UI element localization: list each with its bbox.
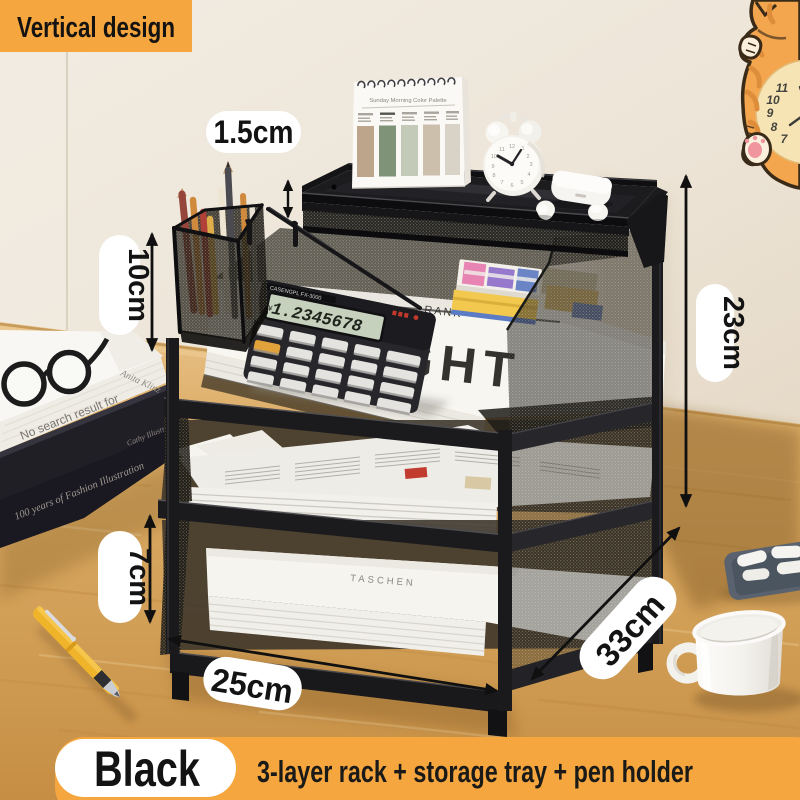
svg-text:10: 10 (766, 93, 780, 107)
svg-text:9: 9 (491, 164, 494, 170)
svg-text:1: 1 (521, 146, 524, 152)
svg-text:7cm: 7cm (123, 548, 155, 606)
svg-text:8: 8 (492, 173, 495, 179)
svg-text:11: 11 (499, 147, 505, 153)
svg-text:3: 3 (529, 162, 532, 168)
svg-text:9: 9 (767, 106, 774, 120)
svg-text:12: 12 (509, 144, 515, 150)
svg-text:6: 6 (510, 183, 513, 189)
svg-text:10cm: 10cm (122, 248, 154, 322)
svg-text:7: 7 (500, 180, 503, 186)
svg-text:Sunday Morning Color Palette: Sunday Morning Color Palette (369, 98, 446, 104)
svg-text:8: 8 (771, 120, 778, 134)
svg-text:10: 10 (491, 154, 497, 160)
svg-text:Black: Black (94, 741, 200, 797)
svg-text:5: 5 (520, 180, 523, 186)
svg-text:3-layer rack + storage tray +: 3-layer rack + storage tray + pen holder (257, 754, 693, 789)
svg-text:Vertical design: Vertical design (17, 12, 175, 44)
svg-text:4: 4 (527, 172, 530, 178)
svg-text:2: 2 (526, 154, 529, 160)
svg-text:1.5cm: 1.5cm (214, 114, 294, 150)
svg-text:23cm: 23cm (717, 296, 749, 370)
